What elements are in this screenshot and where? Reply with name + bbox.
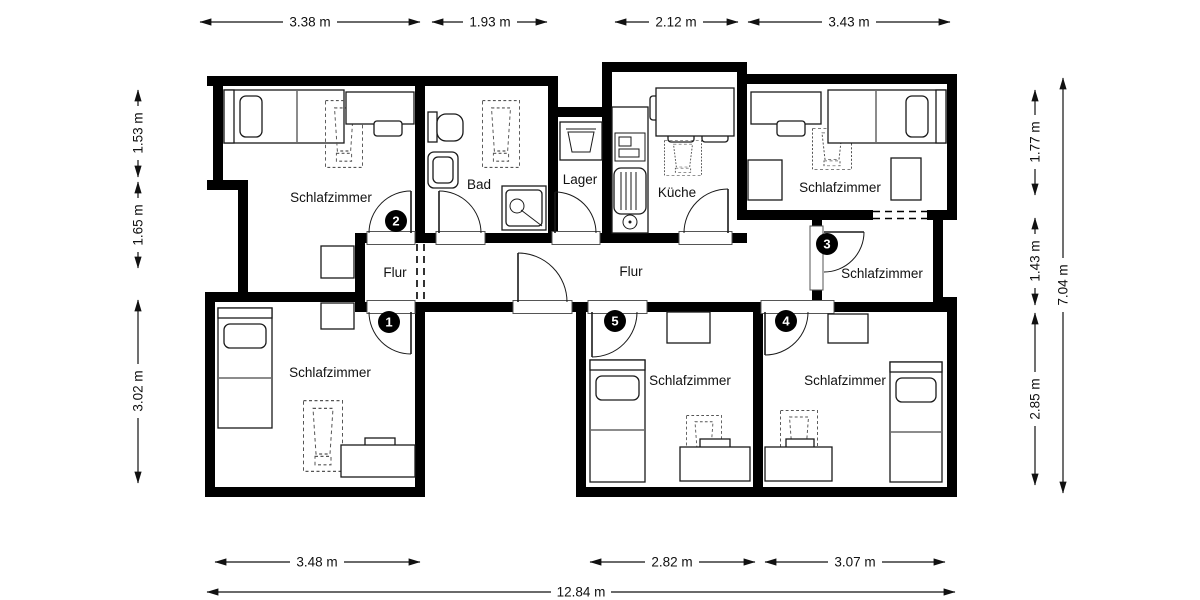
bed-icon <box>218 308 272 428</box>
kitchen-table-icon <box>650 88 734 142</box>
sink-icon <box>428 152 458 188</box>
room-label-bad: Bad <box>467 177 491 192</box>
dashed-openings <box>417 210 927 301</box>
svg-text:3.38 m: 3.38 m <box>289 15 330 30</box>
room-label-flur-main: Flur <box>619 264 643 279</box>
room-label-schlafzimmer-top-left: Schlafzimmer <box>290 190 372 205</box>
svg-text:12.84 m: 12.84 m <box>557 585 606 600</box>
svg-text:2.82 m: 2.82 m <box>651 555 692 570</box>
side-table-icon <box>321 303 354 329</box>
dimension-right-total: 7.04 m <box>1055 78 1072 493</box>
room-label-schlafzimmer-top-right: Schlafzimmer <box>799 180 881 195</box>
cabinet-icon <box>748 160 782 200</box>
cabinet-icon <box>667 312 710 343</box>
bed-icon <box>224 90 344 143</box>
svg-text:3.48 m: 3.48 m <box>296 555 337 570</box>
door-lager <box>555 192 596 233</box>
cabinet-icon <box>891 158 921 200</box>
dimension-bottom-3: 3.07 m <box>765 554 945 571</box>
dimension-top-1: 3.38 m <box>200 14 420 31</box>
svg-text:3.07 m: 3.07 m <box>834 555 875 570</box>
door-badge-3: 3 <box>816 233 838 255</box>
dimension-bottom-1: 3.48 m <box>215 554 420 571</box>
door-badge-4: 4 <box>775 310 797 332</box>
shower-icon <box>502 186 546 230</box>
desk-icon <box>346 92 414 136</box>
room-label-schlafzimmer-mid-right: Schlafzimmer <box>841 266 923 281</box>
svg-text:3: 3 <box>823 237 830 252</box>
dimension-left-3: 3.02 m <box>130 300 147 483</box>
door-badge-1: 1 <box>378 311 400 333</box>
desk-icon <box>751 92 821 136</box>
svg-text:2.85 m: 2.85 m <box>1028 378 1043 419</box>
side-table-icon <box>321 246 354 278</box>
dimension-right-3: 2.85 m <box>1027 313 1044 485</box>
ghost-chair-icon <box>304 401 343 472</box>
dimension-top-2: 1.93 m <box>432 14 547 31</box>
svg-text:1: 1 <box>385 315 392 330</box>
room-label-schlafzimmer-bottom-right: Schlafzimmer <box>804 373 886 388</box>
svg-text:4: 4 <box>782 314 790 329</box>
svg-text:1.93 m: 1.93 m <box>469 15 510 30</box>
svg-text:1.53 m: 1.53 m <box>131 112 146 153</box>
cabinet-icon <box>828 314 868 343</box>
desk-icon <box>341 438 415 477</box>
bed-icon <box>590 360 645 482</box>
svg-text:1.65 m: 1.65 m <box>131 204 146 245</box>
svg-text:2.12 m: 2.12 m <box>655 15 696 30</box>
desk-icon <box>680 439 750 481</box>
kitchen-counter-icon <box>612 107 648 233</box>
ghost-chair-icon <box>664 140 701 175</box>
room-label-schlafzimmer-bottom-left: Schlafzimmer <box>289 365 371 380</box>
dimension-bottom-2: 2.82 m <box>590 554 755 571</box>
dimension-right-1: 1.77 m <box>1027 90 1044 195</box>
svg-text:3.43 m: 3.43 m <box>828 15 869 30</box>
dimension-bottom-total: 12.84 m <box>207 584 955 600</box>
svg-text:1.43 m: 1.43 m <box>1028 240 1043 281</box>
room-label-flur-left: Flur <box>383 265 407 280</box>
room-label-schlafzimmer-bottom-center: Schlafzimmer <box>649 373 731 388</box>
dimension-left-2: 1.65 m <box>130 182 147 268</box>
bed-icon <box>828 90 946 143</box>
toilet-icon <box>428 112 463 142</box>
svg-text:2: 2 <box>392 214 399 229</box>
bed-icon <box>890 362 942 482</box>
room-label-lager: Lager <box>563 172 598 187</box>
dimension-right-2: 1.43 m <box>1027 218 1044 305</box>
desk-icon <box>765 439 832 481</box>
dimension-left-1: 1.53 m <box>130 90 147 177</box>
svg-text:1.77 m: 1.77 m <box>1028 121 1043 162</box>
laundry-basket-icon <box>560 122 602 160</box>
dimension-top-3: 2.12 m <box>615 14 738 31</box>
door-badge-5: 5 <box>604 310 626 332</box>
door-bad <box>439 191 481 233</box>
room-label-kueche: Küche <box>658 185 696 200</box>
ghost-appliance-icon <box>482 101 519 168</box>
door-thresholds <box>367 226 834 314</box>
svg-text:7.04 m: 7.04 m <box>1056 264 1071 305</box>
floor-plan-svg: Schlafzimmer Bad Lager Küche Schlafzimme… <box>0 0 1200 600</box>
door-entrance <box>518 253 567 302</box>
door-badge-2: 2 <box>385 210 407 232</box>
svg-text:3.02 m: 3.02 m <box>131 370 146 411</box>
dimension-top-4: 3.43 m <box>748 14 950 31</box>
svg-text:5: 5 <box>611 314 618 329</box>
